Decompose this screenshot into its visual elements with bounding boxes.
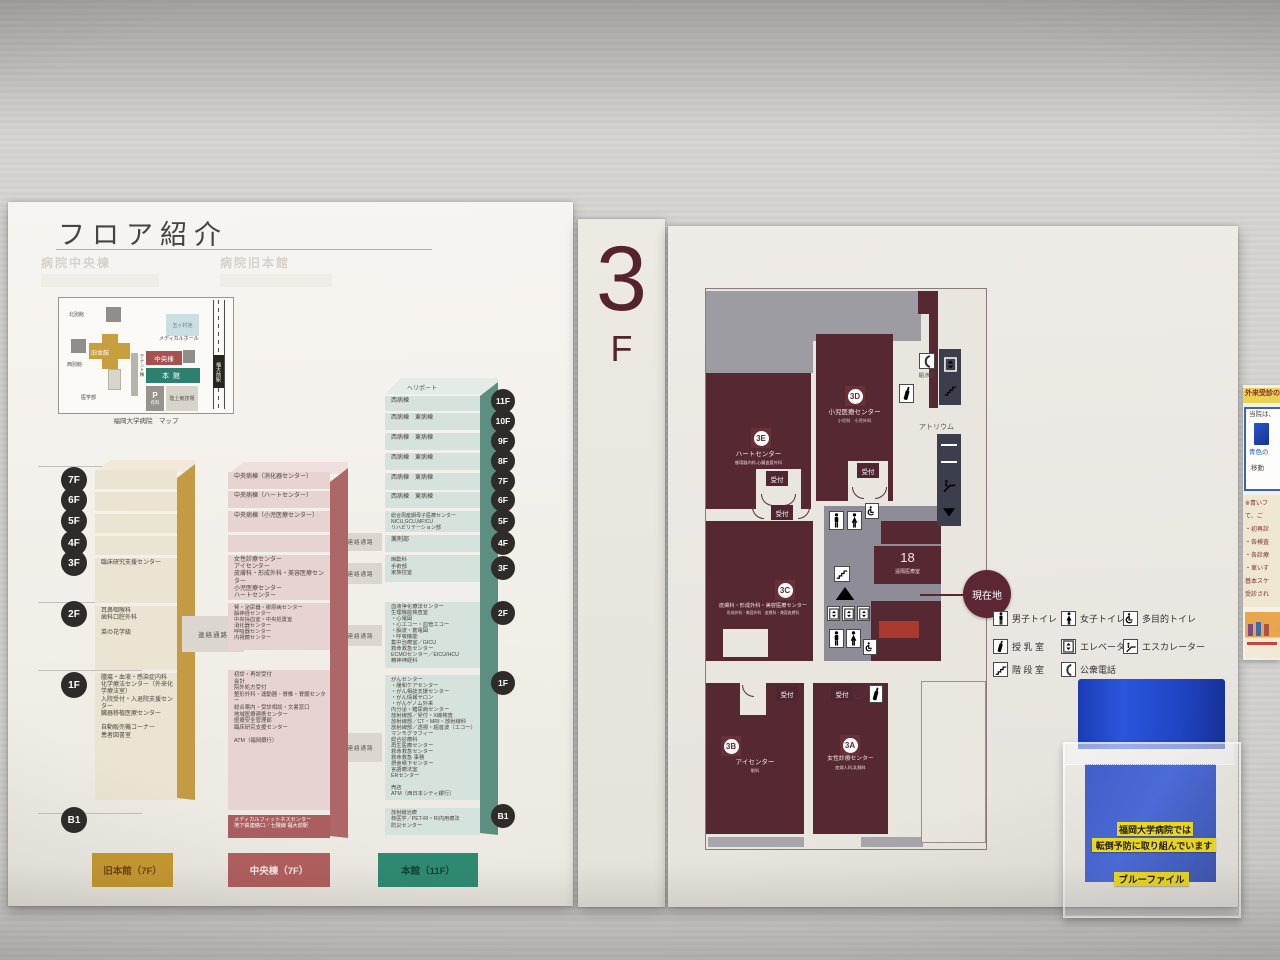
room-3a-name: 女性診療センター — [813, 756, 888, 763]
legend-label: 授 乳 室 — [1012, 640, 1044, 653]
womens-toilet-icon — [846, 629, 861, 648]
tenant-label: テナント棟 — [139, 354, 145, 377]
map-room — [918, 291, 938, 314]
medical-hall-block — [183, 350, 195, 363]
main-floor-5f: 総合周産期母子医療センター NICU,GCU,MFICU リハビリテーション部 — [385, 511, 480, 532]
room-3a-sub: 産婦人科,乳腺科 — [813, 765, 888, 770]
central-tower-label: 中央棟（7F） — [228, 853, 330, 887]
room-18: 18 遠隔医療室 — [874, 546, 941, 584]
panel-title: フロア紹介 — [58, 213, 228, 252]
central-floor-7f: 中央病棟（消化器センター） — [228, 472, 330, 489]
legend-item-womens: 女子トイレ — [1061, 611, 1125, 626]
old-floor-6f — [95, 492, 177, 511]
room-3e-name: ハートセンター — [706, 451, 811, 458]
room-3b-name: アイセンター — [706, 759, 804, 766]
medical-hall-label: メディカルホール — [159, 335, 199, 342]
main-floor-6f: 西病棟 東病棟 — [385, 492, 480, 508]
reception-3e: 受付 — [766, 471, 788, 486]
floor-number-sign: 3 F — [578, 219, 665, 907]
outpatient-notice: 外来受診の 当院は、 青色の 移動 ※青いフ て、ご ・初再診 ・各検査 ・各診… — [1243, 385, 1280, 660]
door-arc — [798, 507, 810, 519]
floor-badge-3f-r: 3F — [491, 556, 515, 580]
central-bldg-block: 中央棟 — [146, 351, 182, 365]
campus-map-caption: 福岡大学病院 マップ — [61, 415, 231, 425]
facility-room — [881, 521, 941, 544]
divider — [38, 670, 142, 671]
floor-badge-2f-r: 2F — [491, 601, 515, 625]
main-floor-1f: がんセンター ・緩和ケアセンター ・がん相談支援センター ・がん情報サロン ・が… — [385, 675, 480, 800]
balcony — [861, 837, 923, 847]
room-3d-badge: 3D — [845, 386, 865, 406]
fall-prevention-label-1: 福岡大学病院では — [1117, 822, 1193, 836]
floor-badge-1f-r: 1F — [491, 671, 515, 695]
central-floor-3f: 女性診療センター アイセンター 皮膚科・形成外科・美容医療センター 小児医療セン… — [228, 555, 330, 600]
mens-toilet-icon — [993, 611, 1008, 626]
heliport-label: ヘリポート — [407, 383, 437, 392]
mens-toilet-icon — [829, 629, 844, 648]
tenant-block — [131, 353, 138, 396]
legend-item-escalator: エスカレーター — [1123, 639, 1205, 654]
main-floor-b1: 放射線治療 核医学／PET-RI・RI内用療法 防災センター — [385, 808, 480, 835]
room-18-number: 18 — [874, 550, 941, 565]
main-bldg-block: 本館 — [146, 368, 200, 383]
legend-item-mens: 男子トイレ — [993, 611, 1057, 626]
elevator-icon — [842, 606, 855, 621]
central-tower-side — [330, 468, 348, 838]
main-tower-heliport: ヘリポート — [385, 378, 498, 394]
north-annex-block — [106, 307, 121, 322]
parking-p: P — [152, 391, 157, 400]
floor-letter: F — [578, 331, 665, 367]
photo-of-hospital-floor-guide: フロア紹介 病院中央棟 病院旧本館 北別館 旧本館 西別館 テナント棟 医学部 … — [0, 0, 1280, 960]
elevator-icon — [1061, 639, 1076, 654]
room-3d-name: 小児医療センター — [816, 409, 893, 416]
floor-guide-panel: フロア紹介 病院中央棟 病院旧本館 北別館 旧本館 西別館 テナント棟 医学部 … — [8, 202, 573, 906]
legend-item-nursing: 授 乳 室 — [993, 639, 1044, 654]
atrium-label: アトリウム — [909, 422, 964, 432]
divider — [38, 813, 142, 814]
water-dispenser-label: 給水器 — [912, 371, 942, 379]
legend-label: 多目的トイレ — [1142, 612, 1196, 625]
room-3d-badge-text: 3D — [848, 389, 863, 404]
room-3e-badge-text: 3E — [754, 431, 769, 446]
nursing-room-icon — [993, 639, 1008, 654]
stairs-icon — [944, 384, 957, 397]
floor-badge-5f-r: 5F — [491, 509, 515, 533]
accessible-toilet-icon — [1123, 611, 1138, 626]
old-main-label: 旧本館 — [91, 348, 109, 357]
notice-line3: 移動 — [1251, 465, 1264, 473]
central-floor-1f: 初診・再診受付 会計 院外処方受付 整形外科・運動器・脊椎・脊髄センター 総合案… — [228, 670, 330, 810]
west-annex-block — [71, 339, 86, 353]
legend-label: エスカレーター — [1142, 640, 1205, 653]
room-3c-sub: 形成外科・美容外科 皮膚科・美容皮膚科 — [698, 611, 828, 616]
room-3e-sub: 循環器内科,心臓血管外科 — [706, 460, 811, 465]
old-floor-4f — [95, 536, 177, 555]
central-floor-2f: 腎・泌尿器・膠原病センター 脳神経センター 中央採血室・中央処置室 消化器センタ… — [228, 603, 330, 650]
old-floor-3f: 臨床研究支援センター — [95, 558, 177, 603]
central-floor-6f: 中央病棟（ハートセンター） — [228, 491, 330, 508]
public-phone-icon — [1061, 662, 1076, 677]
fall-prevention-label-2: 転倒予防に取り組んでいます — [1092, 838, 1216, 852]
room-3c-badge-text: 3C — [778, 583, 793, 598]
notice-highlight-box: 当院は、 青色の 移動 — [1244, 407, 1280, 491]
here-pointer-line — [920, 594, 964, 596]
gray-area — [706, 341, 813, 373]
ghost-header-central: 病院中央棟 — [41, 254, 111, 271]
ghost-box — [220, 274, 332, 287]
room-3d-sub: 小児科 小児外科 — [816, 418, 893, 423]
main-floor-8f: 西病棟 東病棟 — [385, 453, 480, 470]
pond-block: 五ヶ村池 — [166, 314, 199, 336]
main-floor-3f: 麻酔科 手術部 家族控室 — [385, 555, 480, 582]
elevator-icon — [944, 357, 957, 372]
main-floor-10f: 西病棟 東病棟 — [385, 413, 480, 430]
room-18-name: 遠隔医療室 — [874, 568, 941, 575]
legend-label: 公衆電話 — [1080, 663, 1116, 676]
room-3c-name: 皮膚科・形成外科・美容医療センター — [698, 603, 828, 610]
ghost-header-old: 病院旧本館 — [220, 254, 290, 271]
room-3b-badge-text: 3B — [724, 739, 739, 754]
door-arc — [752, 507, 764, 519]
escalator-box — [937, 434, 961, 526]
old-tower-label: 旧本館（7F） — [92, 853, 173, 887]
elevator-icon — [857, 606, 870, 621]
old-floor-5f — [95, 514, 177, 533]
central-floor-5f: 中央病棟（小児医療センター） — [228, 511, 330, 532]
blue-files-stack — [1078, 679, 1225, 749]
old-floor-7f — [95, 470, 177, 489]
escalator-icon — [1123, 639, 1138, 654]
main-floor-9f: 西病棟 東病棟 — [385, 433, 480, 450]
reception-3d: 受付 — [857, 463, 879, 478]
photo-caption-bar — [1247, 642, 1277, 645]
public-phone-icon — [919, 353, 935, 369]
blue-file-thumbnail — [1254, 423, 1269, 445]
west-annex-label: 西別館 — [67, 361, 82, 368]
notice-line2: 青色の — [1249, 449, 1269, 457]
north-annex-label: 北別館 — [69, 311, 84, 318]
medical-school-label: 医学部 — [81, 394, 96, 401]
floor-badge-1f: 1F — [61, 672, 87, 698]
ghost-box — [41, 274, 159, 287]
room-3a-badge: 3A — [840, 735, 860, 755]
accessible-toilet-icon — [865, 503, 879, 519]
photo-figure — [1264, 624, 1269, 636]
nursing-room-icon — [899, 384, 914, 403]
blue-file-label: ブルーファイル — [1114, 872, 1189, 886]
womens-toilet-icon — [847, 511, 862, 530]
main-floor-11f: 西病棟 — [385, 396, 480, 411]
legend-item-accessible: 多目的トイレ — [1123, 611, 1196, 626]
room-3a-badge-text: 3A — [843, 738, 858, 753]
reception-3c: 受付 — [771, 505, 793, 520]
notice-photo — [1245, 612, 1280, 658]
parking-block: P 有料 — [146, 386, 164, 411]
corridor-notch — [723, 629, 768, 657]
empty-room — [921, 681, 986, 843]
room-3e-badge: 3E — [751, 428, 771, 448]
photo-figure — [1248, 624, 1253, 636]
station-block: 福大前駅 — [213, 355, 224, 388]
escalator-step-bar — [941, 461, 957, 463]
main-floor-4f: 薬剤部 — [385, 535, 480, 552]
floor-badge-b1-r: B1 — [491, 804, 515, 828]
main-floor-2f: 血液浄化療法センター 生理機能検査室 ・心電図 ・心エコー・血管エコー ・脳波・… — [385, 602, 480, 668]
reception-3b: 受付 — [776, 686, 798, 701]
notice-line1: 当院は、 — [1249, 411, 1275, 419]
legend-label: 女子トイレ — [1080, 612, 1125, 625]
floor-number: 3 — [578, 233, 665, 325]
down-arrow-icon — [943, 508, 955, 517]
medical-school-block — [108, 369, 121, 390]
athletics-block: 陸上競技場 — [166, 386, 198, 411]
reception-3a: 受付 — [831, 686, 853, 701]
title-underline — [56, 249, 432, 250]
old-floor-1f: 腫瘍・血液・感染症内科 化学療法センター（外来化学療法室） 入院受付・入退院支援… — [95, 673, 177, 800]
campus-mini-map: 北別館 旧本館 西別館 テナント棟 医学部 五ヶ村池 メディカルホール 中央棟 … — [58, 297, 234, 414]
main-tower-label: 本館（11F） — [378, 853, 478, 887]
notice-body: ※青いフ て、ご ・初再診 ・各検査 ・各診療 ・車いす 基本スケ 受診され — [1245, 498, 1269, 602]
current-location-room — [879, 621, 919, 638]
balcony — [708, 837, 804, 847]
legend-label: 階 段 室 — [1012, 663, 1044, 676]
central-floor-4f — [228, 535, 330, 552]
legend-item-phone: 公衆電話 — [1061, 662, 1116, 677]
room-3b-badge: 3B — [721, 736, 741, 756]
central-floor-b1: メディカルフィットネスセンター 地下鉄連絡口／七隈線 福大前駅 — [228, 815, 330, 838]
notice-header: 外来受診の — [1243, 388, 1280, 403]
elevator-icon — [827, 606, 840, 621]
main-floor-7f: 西病棟 東病棟 — [385, 473, 480, 490]
notice-body-box: ※青いフ て、ご ・初再診 ・各検査 ・各診療 ・車いす 基本スケ 受診され — [1243, 495, 1280, 607]
parking-sub: 有料 — [151, 400, 160, 406]
womens-toilet-icon — [1061, 611, 1076, 626]
floor-badge-4f-r: 4F — [491, 531, 515, 555]
room-3c-badge: 3C — [775, 580, 795, 600]
old-floor-2f: 耳鼻咽喉科 歯科口腔外科 菜の花学級 — [95, 606, 177, 670]
floor-map: 3E ハートセンター 循環器内科,心臓血管外科 受付 3D 小児医療センター 小… — [705, 288, 987, 850]
accessible-toilet-icon — [863, 639, 877, 655]
floor-badge-b1: B1 — [61, 807, 87, 833]
floor-badge-2f: 2F — [61, 601, 87, 627]
here-pointer-triangle — [835, 587, 855, 600]
nursing-room-icon — [869, 685, 883, 703]
legend-item-stairs: 階 段 室 — [993, 662, 1044, 677]
legend-label: 男子トイレ — [1012, 612, 1057, 625]
elevator-stairs-box — [939, 349, 961, 405]
stairs-icon — [834, 566, 850, 582]
escalator-step-bar — [941, 444, 957, 446]
photo-figure — [1256, 622, 1261, 636]
mens-toilet-icon — [829, 511, 844, 530]
acrylic-pocket-flap — [1066, 744, 1234, 765]
floor-badge-3f: 3F — [61, 550, 87, 576]
stairs-icon — [993, 662, 1008, 677]
room-3b-sub: 眼科 — [706, 768, 804, 773]
escalator-icon — [942, 478, 957, 493]
